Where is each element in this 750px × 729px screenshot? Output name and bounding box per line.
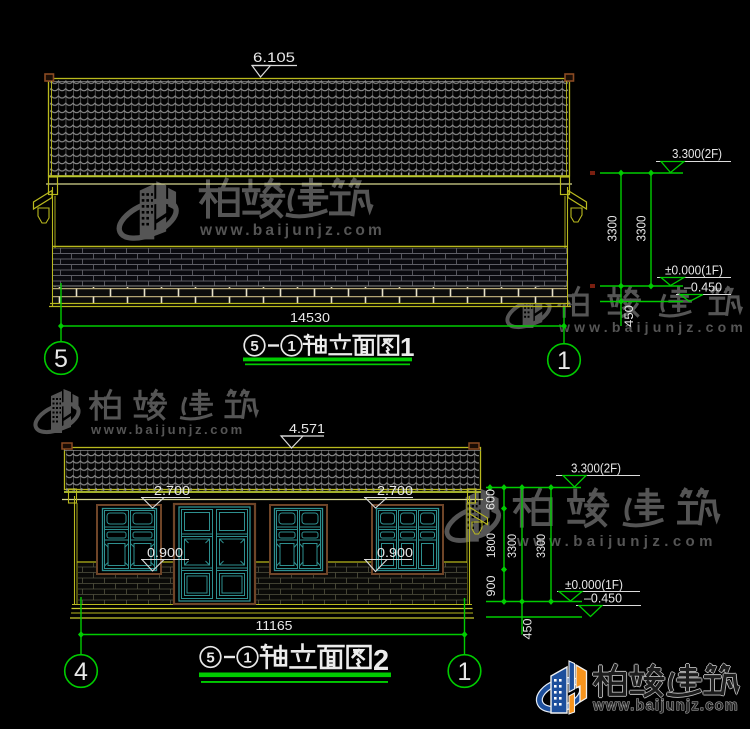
svg-text:1: 1 — [458, 658, 472, 686]
svg-text:www.baijunjz.com: www.baijunjz.com — [90, 422, 245, 437]
svg-text:5: 5 — [54, 345, 68, 373]
svg-text:1: 1 — [243, 650, 251, 667]
svg-text:0.900: 0.900 — [377, 546, 413, 560]
svg-text:5: 5 — [206, 650, 214, 667]
svg-text:–0.450: –0.450 — [684, 280, 722, 295]
svg-text:450: 450 — [624, 305, 636, 327]
svg-text:2.700: 2.700 — [377, 484, 413, 498]
svg-text:3300: 3300 — [505, 534, 519, 558]
svg-text:4: 4 — [74, 658, 88, 686]
svg-text:3300: 3300 — [635, 215, 649, 241]
svg-text:1800: 1800 — [484, 533, 498, 558]
svg-text:3300: 3300 — [606, 215, 620, 241]
svg-text:11165: 11165 — [256, 619, 293, 633]
svg-text:5: 5 — [250, 338, 258, 355]
svg-text:0.900: 0.900 — [147, 546, 183, 560]
svg-text:14530: 14530 — [290, 311, 330, 325]
svg-text:600: 600 — [484, 489, 498, 510]
svg-text:±0.000(1F): ±0.000(1F) — [665, 263, 723, 278]
svg-text:2.700: 2.700 — [154, 484, 190, 498]
svg-text:1: 1 — [287, 338, 295, 355]
svg-text:3.300(2F): 3.300(2F) — [571, 461, 621, 476]
svg-text:900: 900 — [484, 575, 498, 596]
svg-text:3300: 3300 — [534, 534, 548, 558]
svg-text:1: 1 — [557, 347, 571, 375]
svg-text:4.571: 4.571 — [289, 421, 325, 436]
svg-text:–0.450: –0.450 — [584, 591, 622, 606]
svg-text:450: 450 — [521, 618, 535, 639]
svg-text:www.baijunjz.com: www.baijunjz.com — [199, 222, 385, 239]
svg-text:www.baijunjz.com: www.baijunjz.com — [592, 698, 739, 714]
svg-text:3.300(2F): 3.300(2F) — [672, 146, 722, 161]
svg-text:2: 2 — [373, 645, 389, 677]
svg-text:6.105: 6.105 — [253, 50, 295, 65]
svg-text:www.baijunjz.com: www.baijunjz.com — [558, 319, 747, 335]
